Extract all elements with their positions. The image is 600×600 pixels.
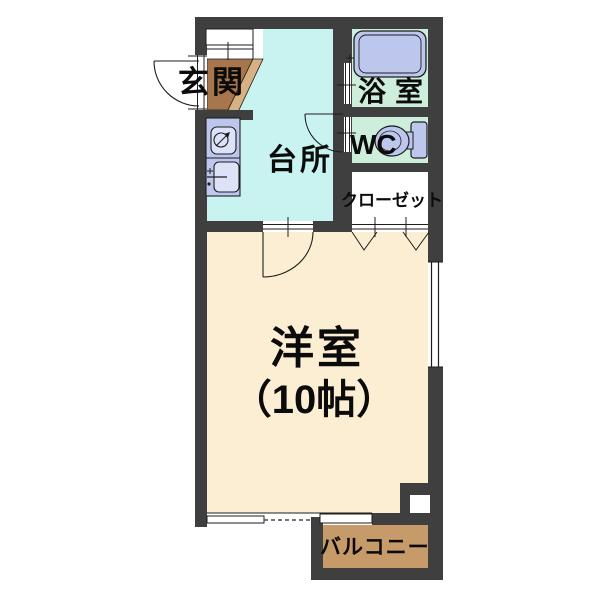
bathroom-label: 浴室: [358, 75, 432, 107]
main-room-label: 洋室: [270, 323, 364, 373]
closet-label: クローゼット: [341, 190, 443, 210]
balcony-label: バルコニー: [320, 536, 430, 559]
bathtub-outer: [354, 31, 426, 77]
pipe-space-notch: [410, 495, 430, 513]
main-room-size-label: （10帖）: [232, 378, 397, 422]
right-window-opening: [428, 262, 443, 367]
wall-corner-notch-top: [400, 483, 443, 495]
wall-bath-toilet: [333, 107, 428, 117]
toilet-label: WC: [350, 129, 397, 160]
floor-plan: 玄関 台所 浴室 WC クローゼット 洋室 （10帖） バルコニー: [0, 0, 600, 600]
sliding-door-panel-1: [207, 516, 264, 523]
kitchen-unit: [206, 118, 240, 196]
wall-kitchen-room-left: [195, 221, 263, 232]
right-window: [428, 262, 443, 367]
floor-plan-canvas: 玄関 台所 浴室 WC クローゼット 洋室 （10帖） バルコニー: [0, 0, 600, 600]
bathtub-icon: [346, 31, 426, 77]
shoe-cabinet-body: [206, 29, 253, 45]
sliding-door-panel-2: [320, 514, 372, 523]
balcony-sliding-door: [207, 513, 372, 523]
closet-door-opening: [352, 222, 428, 232]
stove-icon: [211, 127, 236, 154]
kitchen-label: 台所: [267, 143, 333, 177]
wall-corner-notch-left: [400, 495, 410, 525]
sink-drain-dot: [207, 182, 210, 185]
wall-kitchen-room-right: [313, 221, 333, 232]
wall-toilet-closet: [333, 163, 428, 172]
wall-balcony-bottom: [311, 568, 443, 580]
wall-top: [195, 17, 443, 29]
entrance-label: 玄関: [178, 65, 246, 100]
